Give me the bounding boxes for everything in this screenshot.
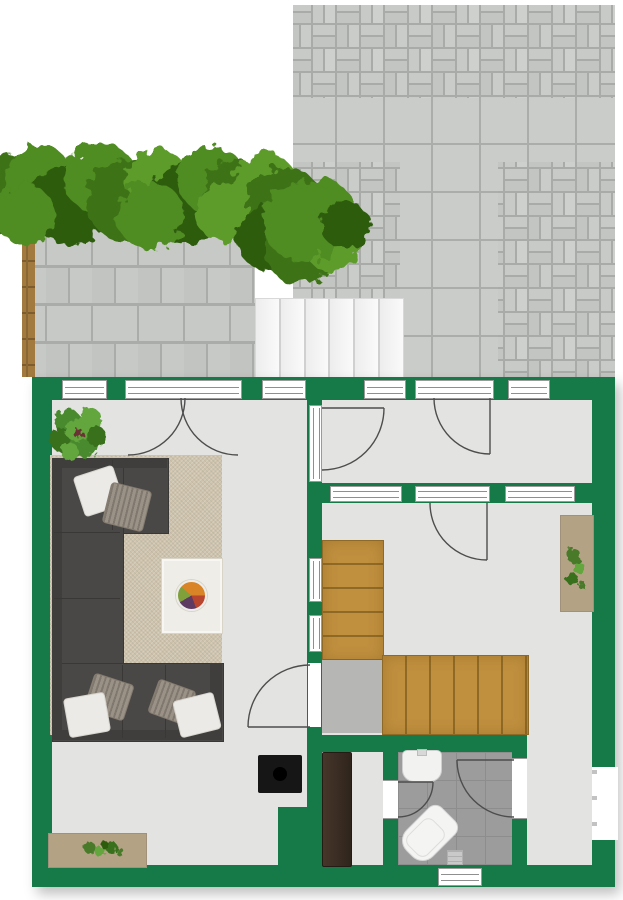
french-door-right-swing <box>181 398 238 455</box>
entry-door-swing <box>434 398 490 454</box>
french-door-left-swing <box>128 398 185 455</box>
bathroom-right-door-swing <box>457 760 514 817</box>
floor-plan-canvas <box>0 0 623 900</box>
hall-door-swing <box>430 503 487 560</box>
vestibule-side-door-swing <box>322 408 384 470</box>
living-room-door-swing <box>248 665 310 727</box>
door-swing-layer <box>0 0 623 900</box>
bathroom-left-door-swing <box>398 782 433 817</box>
